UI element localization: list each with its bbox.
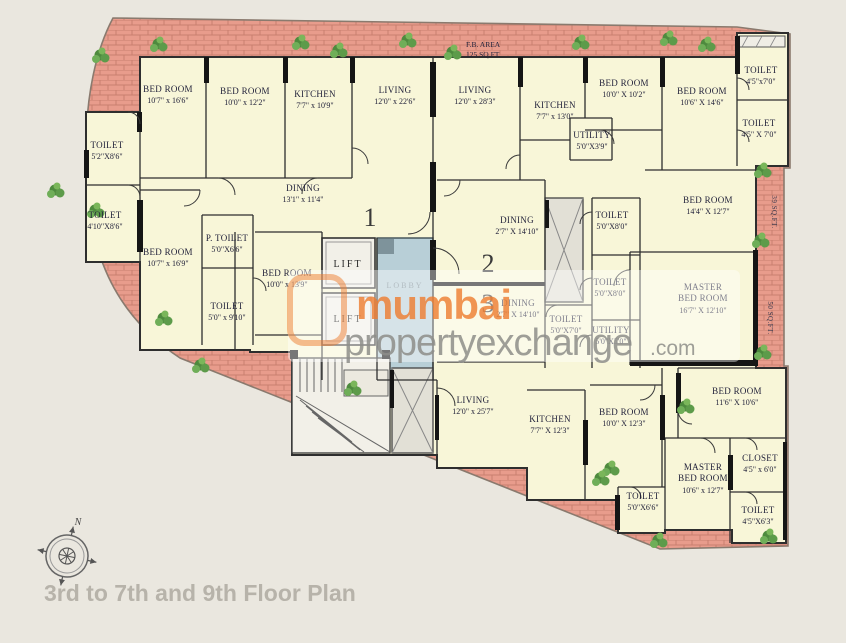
room-label: TOILET (90, 140, 123, 150)
room-label: TOILET (210, 301, 243, 311)
window-strip (739, 36, 785, 47)
room-dim: 4'10"X8'6" (87, 222, 122, 231)
room-dim: 10'6" x 12'7" (682, 486, 723, 495)
room-dim: 10'6" X 14'6" (680, 98, 723, 107)
room-label: BED ROOM (220, 86, 270, 96)
room-dim: 2'7" X 14'10" (495, 227, 538, 236)
lift-1-label: LIFT (333, 259, 362, 270)
room-label: BED ROOM (677, 86, 727, 96)
room-label: LIVING (459, 85, 492, 95)
room-dim: 14'4" X 12'7" (686, 207, 729, 216)
room-label: DINING (286, 183, 320, 193)
floor-plan-page: BED ROOM 10'7" x 16'6" BED ROOM 10'0" x … (0, 0, 846, 643)
room-label: TOILET (626, 491, 659, 501)
compass-north-label: N (74, 517, 83, 528)
room-label: BED ROOM (599, 407, 649, 417)
room-label: KITCHEN (529, 414, 571, 424)
room-dim: 12'0" x 22'6" (374, 97, 415, 106)
room-dim: 7'7" x 10'9" (296, 101, 333, 110)
room-dim: 5'0"X8'0" (596, 222, 627, 231)
room-label: MASTER (684, 462, 722, 472)
fb-area-size: 125 SQ.FT. (466, 50, 501, 59)
watermark: mumbai propertyexchange .com (288, 270, 740, 364)
room-dim: 7'7" x 13'0" (536, 112, 573, 121)
room-label: KITCHEN (294, 89, 336, 99)
room-label: CLOSET (742, 453, 778, 463)
room-dim: 5'2"X8'6" (91, 152, 122, 161)
strip-39-label: 39 SQ.FT. (770, 195, 778, 228)
watermark-com: .com (650, 337, 696, 360)
room-dim: 5'0"X3'9" (576, 142, 607, 151)
room-dim: 11'6" X 10'6" (716, 398, 759, 407)
room-label: KITCHEN (534, 100, 576, 110)
room-dim: 5'0" x 9'10" (208, 313, 245, 322)
room-dim: 4'5"X6'3" (742, 517, 773, 526)
room-dim: 10'7" x 16'9" (147, 259, 188, 268)
room-dim: 7'7" X 12'3" (530, 426, 569, 435)
fb-area-label: F.B. AREA (466, 40, 501, 49)
room-label: TOILET (88, 210, 121, 220)
room-label: BED ROOM (143, 247, 193, 257)
room-dim: 4'5"x7'0" (746, 77, 775, 86)
room-label: BED ROOM (712, 386, 762, 396)
room-label: TOILET (744, 65, 777, 75)
room-label: UTILITY (573, 130, 611, 140)
room-label: DINING (500, 215, 534, 225)
room-dim: 10'0" x 12'2" (224, 98, 265, 107)
room-label: TOILET (742, 118, 775, 128)
room-dim: 5'0"X6'6" (627, 503, 658, 512)
compass-spokes (58, 547, 77, 566)
room-dim: 13'1" x 11'4" (282, 195, 323, 204)
room-dim: 10'0" X 10'2" (602, 90, 645, 99)
room-label: TOILET (741, 505, 774, 515)
strip-50-label: 50 SQ.FT. (766, 301, 774, 334)
room-label: BED ROOM (678, 473, 728, 483)
room-label: BED ROOM (683, 195, 733, 205)
room-label: P. TOILET (206, 233, 249, 243)
room-dim: 10'7" x 16'6" (147, 96, 188, 105)
watermark-mumbai: mumbai (356, 281, 511, 328)
room-dim: 4'5" x 6'0" (743, 465, 776, 474)
lobby-duct (378, 239, 394, 254)
room-dim: 10'0" X 12'3" (602, 419, 645, 428)
room-dim: 4'5" X 7'0" (741, 130, 776, 139)
room-label: TOILET (595, 210, 628, 220)
room-label: BED ROOM (143, 84, 193, 94)
room-dim: 5'0"X6'6" (211, 245, 242, 254)
page-title: 3rd to 7th and 9th Floor Plan (44, 580, 356, 606)
room-label: BED ROOM (599, 78, 649, 88)
unit-1-number: 1 (364, 203, 377, 232)
room-label: LIVING (379, 85, 412, 95)
watermark-propertyexchange: propertyexchange (344, 322, 632, 364)
room-dim: 12'0" x 25'7" (452, 407, 493, 416)
room-dim: 12'0" x 28'3" (454, 97, 495, 106)
floor-plan-canvas: BED ROOM 10'7" x 16'6" BED ROOM 10'0" x … (0, 0, 846, 643)
room-label: LIVING (457, 395, 490, 405)
